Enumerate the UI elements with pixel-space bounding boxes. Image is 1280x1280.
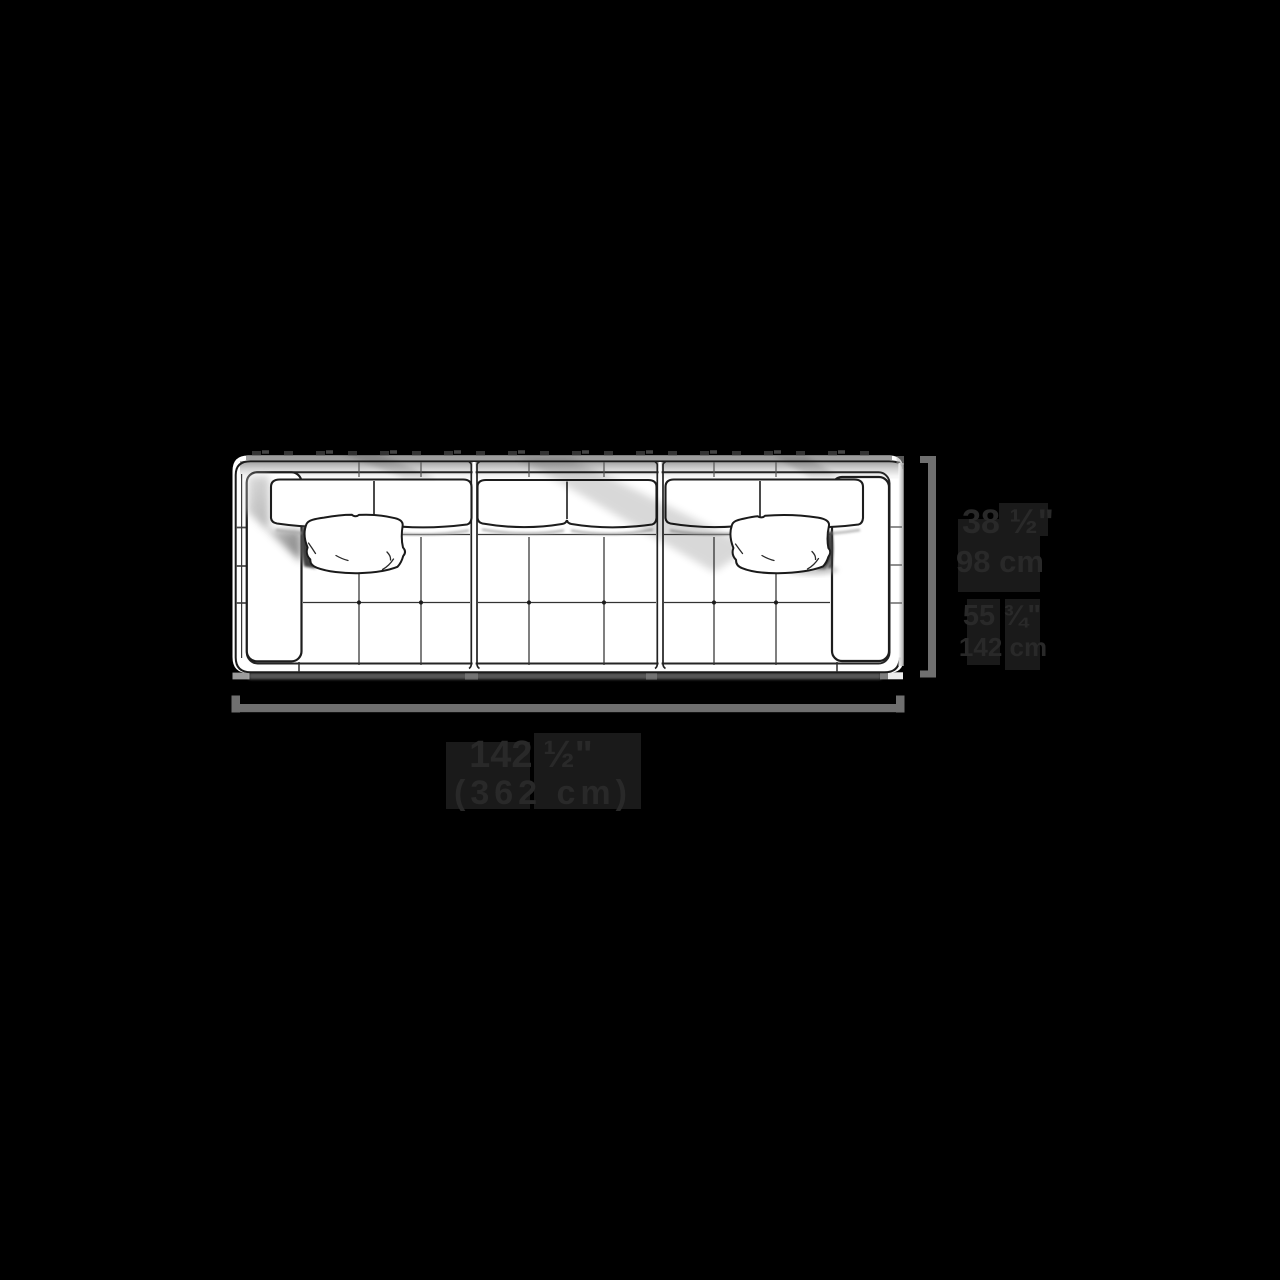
svg-text:55 ¾": 55 ¾" [963,600,1041,632]
svg-text:(362 cm): (362 cm) [454,774,632,812]
svg-text:142 cm: 142 cm [959,632,1047,662]
svg-text:98 cm: 98 cm [956,544,1044,579]
svg-text:38 ½": 38 ½" [962,503,1054,541]
svg-text:142 ½": 142 ½" [469,734,593,776]
